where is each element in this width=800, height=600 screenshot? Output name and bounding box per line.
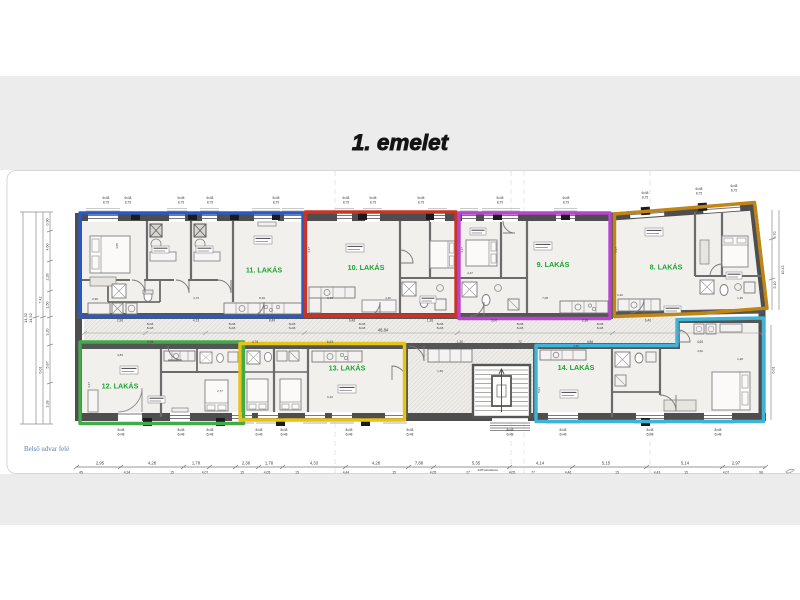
svg-text:4,86: 4,86 [587,340,593,344]
svg-text:6x48: 6x48 [507,433,514,437]
svg-text:6x48: 6x48 [560,433,567,437]
svg-text:6x48: 6x48 [147,326,154,330]
svg-text:8,75: 8,75 [103,201,109,205]
svg-text:8x48: 8x48 [178,428,185,432]
svg-text:6x48: 6x48 [343,196,350,200]
svg-text:3,28: 3,28 [46,401,50,408]
svg-text:5,01: 5,01 [537,387,541,393]
svg-text:2,77: 2,77 [217,389,223,393]
svg-text:6x48: 6x48 [563,196,570,200]
svg-text:48,84: 48,84 [378,328,389,333]
svg-text:4,17: 4,17 [614,247,618,253]
svg-text:4,60: 4,60 [697,340,703,344]
svg-text:2,38: 2,38 [582,319,588,323]
svg-text:45: 45 [79,471,83,475]
svg-text:6x48: 6x48 [731,184,738,188]
svg-text:2,96: 2,96 [117,319,123,323]
svg-text:8,75: 8,75 [178,201,184,205]
svg-text:12. LAKÁS: 12. LAKÁS [102,382,139,391]
svg-text:8x48: 8x48 [647,428,654,432]
svg-text:6x48: 6x48 [497,196,504,200]
svg-text:4,60: 4,60 [46,244,50,251]
svg-text:1,30: 1,30 [457,340,463,344]
svg-text:6x48: 6x48 [207,196,214,200]
svg-text:8,75: 8,75 [497,201,503,205]
svg-text:8x48: 8x48 [346,428,353,432]
svg-text:15: 15 [684,471,688,475]
svg-text:6x48: 6x48 [289,326,296,330]
svg-text:8,75: 8,75 [125,201,131,205]
svg-text:4,05: 4,05 [264,471,271,475]
svg-text:1. emelet: 1. emelet [352,130,450,155]
svg-text:6,01: 6,01 [772,367,776,374]
svg-text:6x48: 6x48 [229,326,236,330]
svg-text:8x48: 8x48 [407,428,414,432]
svg-text:5,10: 5,10 [773,282,777,289]
svg-text:6x48: 6x48 [273,196,280,200]
svg-text:4,84: 4,84 [117,353,123,357]
svg-text:6,43: 6,43 [327,340,333,344]
svg-text:6x48: 6x48 [207,433,214,437]
svg-text:9. LAKÁS: 9. LAKÁS [537,260,570,269]
svg-text:4,46: 4,46 [385,296,391,300]
svg-text:6x48: 6x48 [256,433,263,437]
svg-text:6,40: 6,40 [617,293,623,297]
svg-text:6,46: 6,46 [349,319,355,323]
svg-text:6x48: 6x48 [370,196,377,200]
svg-text:8x48: 8x48 [560,428,567,432]
svg-text:8x48: 8x48 [256,428,263,432]
svg-text:8,49: 8,49 [269,319,275,323]
svg-text:8,75: 8,75 [418,201,424,205]
svg-text:4,43: 4,43 [654,471,661,475]
svg-text:4,05: 4,05 [430,471,437,475]
svg-text:8,75: 8,75 [343,201,349,205]
svg-text:2,36: 2,36 [242,461,251,466]
svg-text:8,75: 8,75 [563,201,569,205]
svg-text:6x48: 6x48 [281,433,288,437]
svg-text:4,05: 4,05 [115,243,119,249]
svg-text:6,40: 6,40 [645,319,651,323]
svg-text:6x48: 6x48 [517,326,524,330]
svg-text:8x48: 8x48 [207,428,214,432]
svg-text:6x48: 6x48 [359,326,366,330]
svg-text:0,90: 0,90 [46,219,50,226]
svg-text:8. LAKÁS: 8. LAKÁS [650,263,683,272]
svg-text:14,52: 14,52 [28,312,33,323]
svg-text:15: 15 [392,471,396,475]
svg-text:13. LAKÁS: 13. LAKÁS [329,364,366,373]
svg-text:6x48: 6x48 [407,433,414,437]
svg-text:4,34: 4,34 [124,471,131,475]
svg-text:6x48: 6x48 [346,433,353,437]
svg-text:6x48: 6x48 [597,326,604,330]
svg-text:Belső udvar felé: Belső udvar felé [24,446,69,453]
svg-text:2,28: 2,28 [46,274,50,281]
svg-text:6x48: 6x48 [647,433,654,437]
svg-text:10,43: 10,43 [781,266,785,275]
svg-text:4,05: 4,05 [509,471,516,475]
svg-text:6x48: 6x48 [178,433,185,437]
svg-text:8,75: 8,75 [642,196,648,200]
svg-text:72: 72 [518,340,522,344]
svg-text:15: 15 [615,471,619,475]
svg-text:4,73: 4,73 [193,319,199,323]
svg-text:8x48: 8x48 [507,428,514,432]
svg-text:7,42: 7,42 [39,297,43,304]
svg-text:2,96: 2,96 [92,297,98,301]
svg-text:6x48: 6x48 [696,187,703,191]
svg-text:4,17: 4,17 [307,247,311,253]
svg-text:6,01: 6,01 [39,367,43,374]
svg-text:8,75: 8,75 [696,192,702,196]
svg-text:1,50: 1,50 [46,302,50,309]
svg-text:8,75: 8,75 [731,189,737,193]
svg-text:27: 27 [466,471,470,475]
svg-text:6,43: 6,43 [327,395,333,399]
svg-text:1,78: 1,78 [192,461,201,466]
svg-text:1,38: 1,38 [427,319,433,323]
svg-text:4,33: 4,33 [310,461,319,466]
svg-text:3,20: 3,20 [46,329,50,336]
svg-text:8,75: 8,75 [370,201,376,205]
svg-text:4,17: 4,17 [460,247,464,253]
svg-text:6x48: 6x48 [125,196,132,200]
svg-text:4,47: 4,47 [87,382,91,388]
svg-text:4,07: 4,07 [202,471,209,475]
svg-text:6x48: 6x48 [437,326,444,330]
svg-text:4,73: 4,73 [193,296,199,300]
svg-text:6x48: 6x48 [118,433,125,437]
svg-text:4,07: 4,07 [723,471,730,475]
svg-text:3,70: 3,70 [773,232,777,239]
svg-text:2,95: 2,95 [96,461,105,466]
svg-text:4,27: 4,27 [467,271,473,275]
svg-text:8x48: 8x48 [281,428,288,432]
svg-text:8,75: 8,75 [273,201,279,205]
svg-text:6x48: 6x48 [715,433,722,437]
svg-text:5,00: 5,00 [491,319,497,323]
svg-text:2,97: 2,97 [732,461,741,466]
svg-text:10. LAKÁS: 10. LAKÁS [348,263,385,272]
svg-text:5,14: 5,14 [681,461,690,466]
svg-text:8,49: 8,49 [259,296,265,300]
svg-text:4,60: 4,60 [697,349,703,353]
svg-text:15: 15 [170,471,174,475]
svg-text:1,78: 1,78 [265,461,274,466]
svg-text:6x48: 6x48 [642,191,649,195]
svg-text:1,30: 1,30 [437,369,443,373]
svg-text:8,75: 8,75 [207,201,213,205]
svg-text:1,35: 1,35 [737,296,743,300]
svg-text:15: 15 [240,471,244,475]
svg-text:11. LAKÁS: 11. LAKÁS [246,266,283,275]
svg-text:2,36: 2,36 [147,340,153,344]
svg-text:6x48: 6x48 [178,196,185,200]
svg-text:4,14: 4,14 [536,461,545,466]
svg-text:4,86: 4,86 [573,344,579,348]
svg-text:5,87: 5,87 [46,362,50,369]
svg-text:5,35: 5,35 [472,461,481,466]
svg-text:4,44: 4,44 [343,471,350,475]
svg-text:6,46: 6,46 [327,296,333,300]
svg-text:4,28: 4,28 [148,461,157,466]
svg-text:98: 98 [759,471,763,475]
svg-text:77: 77 [531,471,535,475]
svg-text:15: 15 [295,471,299,475]
svg-text:14. LAKÁS: 14. LAKÁS [558,363,595,372]
svg-text:5,15: 5,15 [602,461,611,466]
svg-text:7,88: 7,88 [415,461,424,466]
svg-text:1,28: 1,28 [737,357,743,361]
svg-text:8x48: 8x48 [118,428,125,432]
svg-text:6x48: 6x48 [103,196,110,200]
svg-text:4,46: 4,46 [565,471,572,475]
svg-text:4,28: 4,28 [372,461,381,466]
svg-text:4,75: 4,75 [252,340,258,344]
svg-text:7,08: 7,08 [542,296,548,300]
svg-text:6x48: 6x48 [418,196,425,200]
svg-text:8x48: 8x48 [715,428,722,432]
